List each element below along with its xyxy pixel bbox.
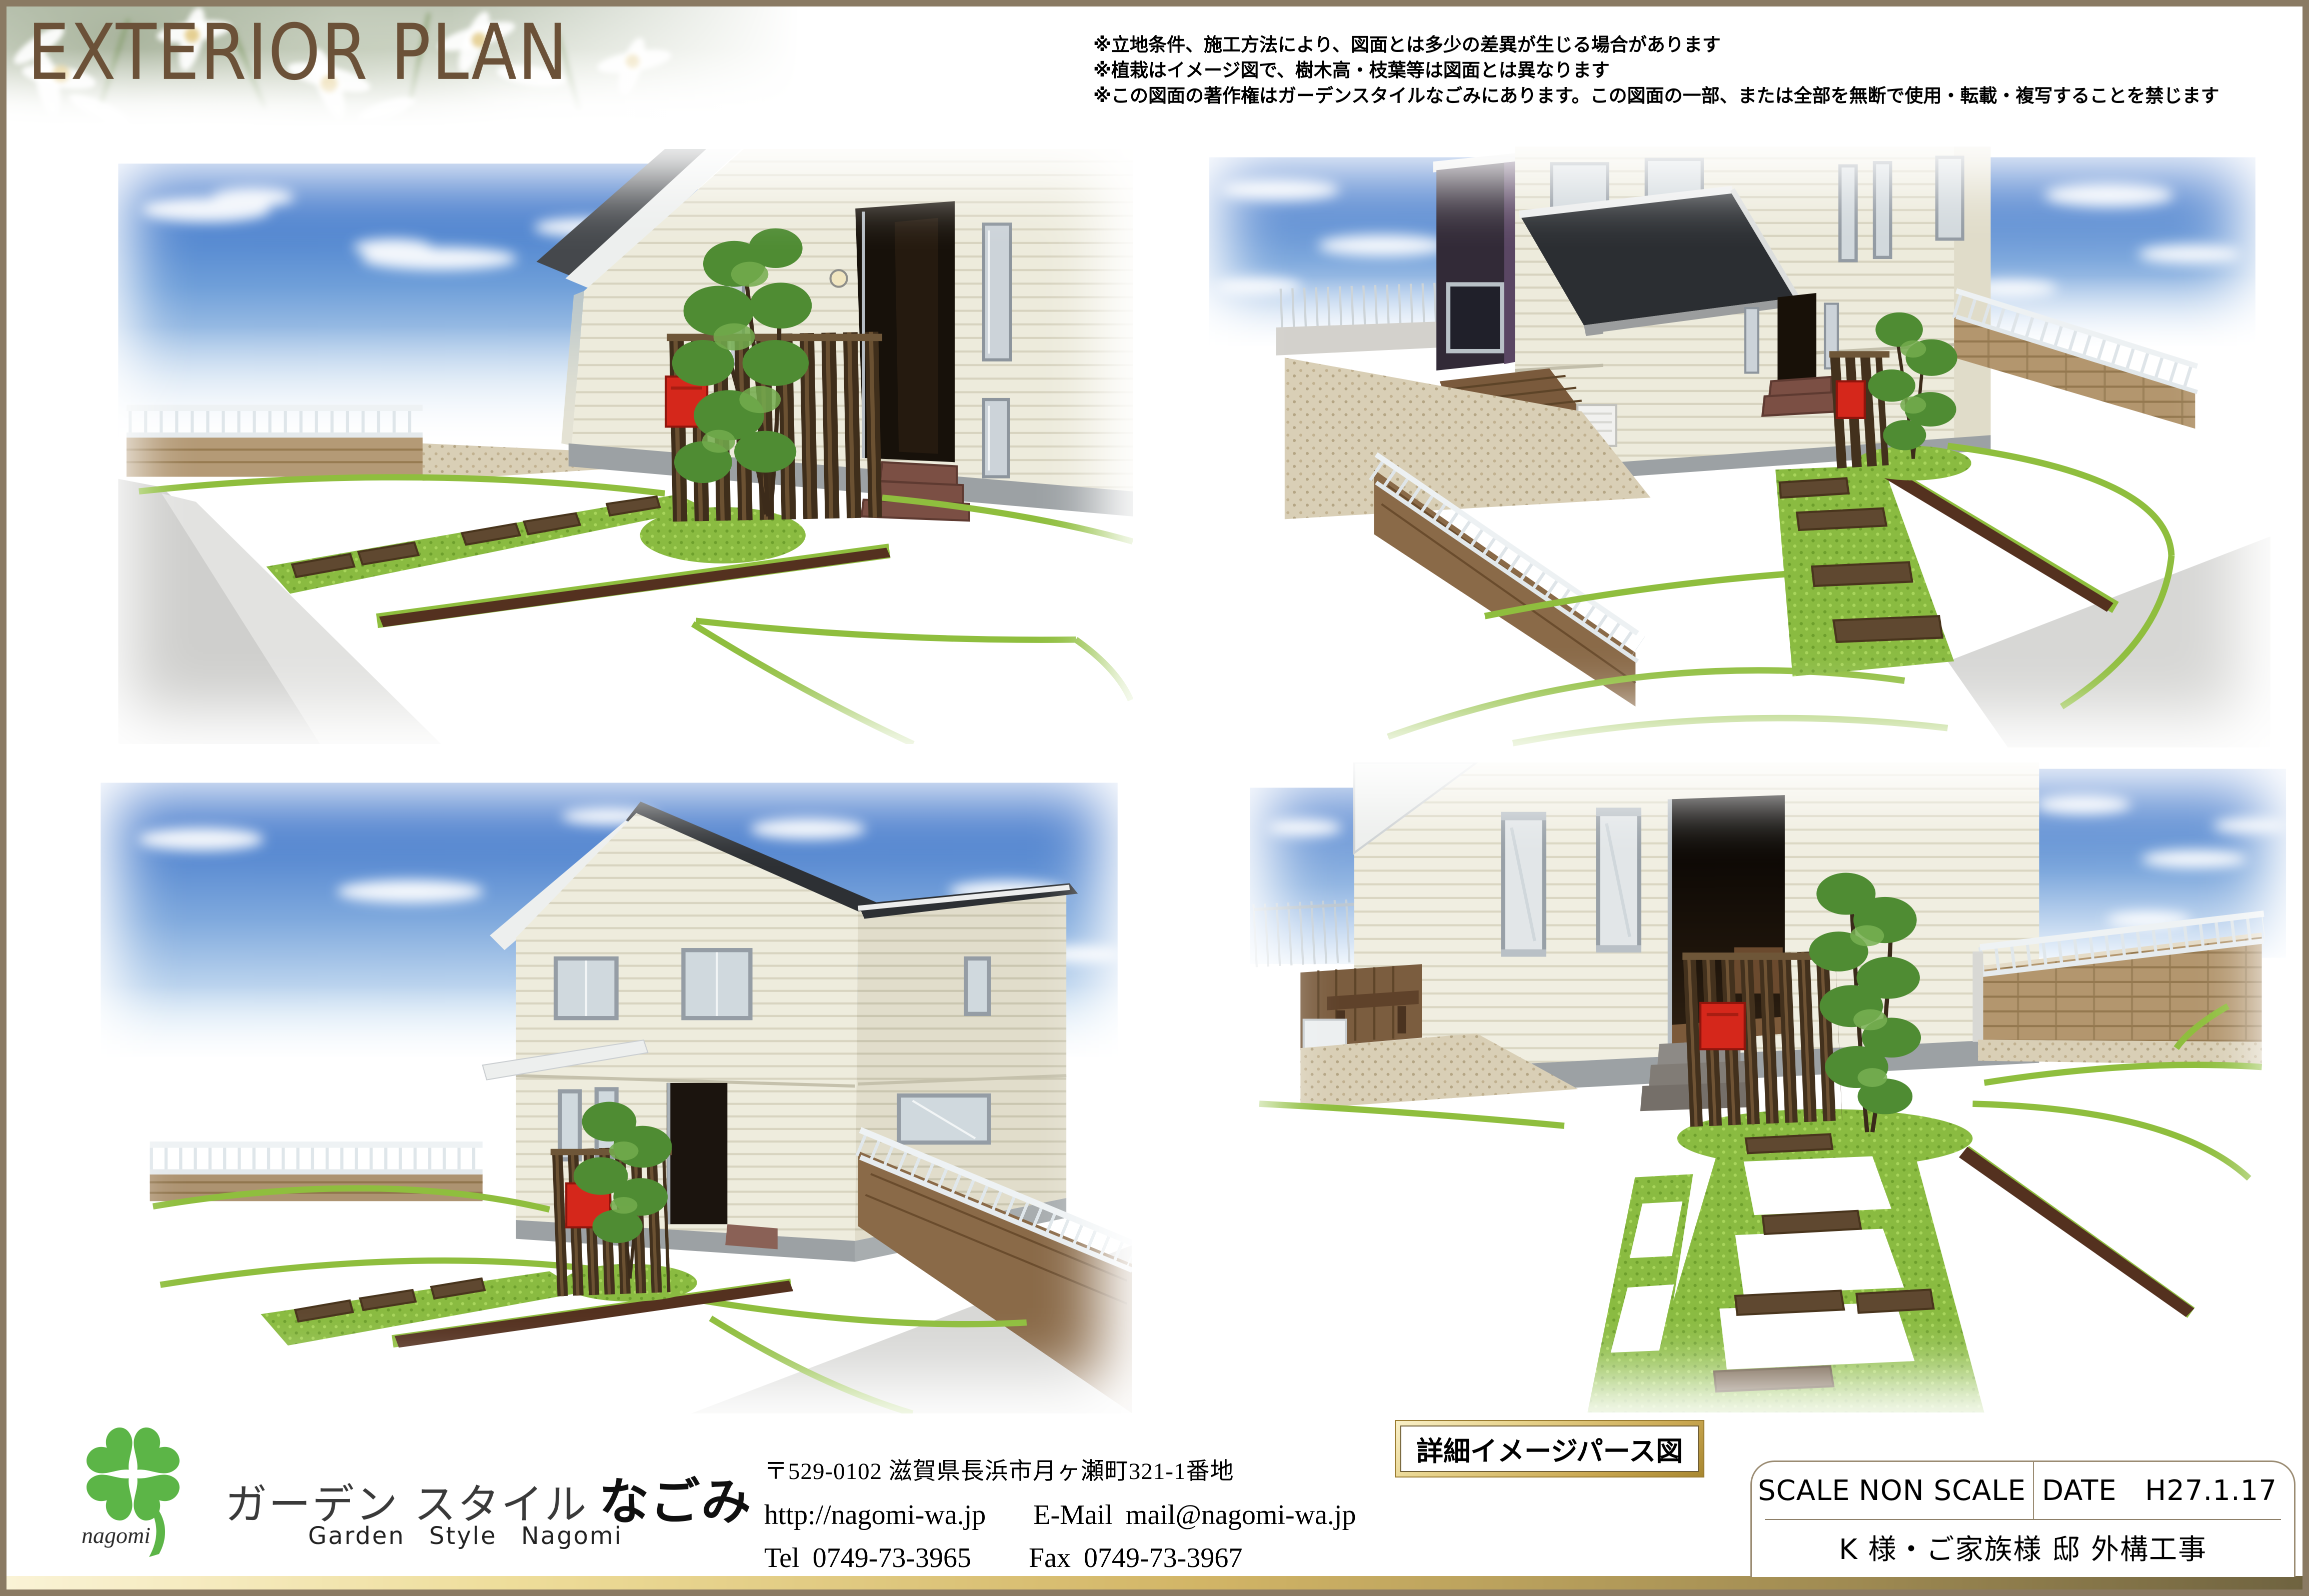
scale-value: NON SCALE bbox=[1859, 1474, 2026, 1507]
tel-number: 0749-73-3965 bbox=[813, 1542, 971, 1574]
contact-block: 〒529-0102 滋賀県長浜市月ヶ瀬町321-1番地 http://nagom… bbox=[764, 1451, 1356, 1574]
mailbox-red bbox=[1837, 381, 1865, 418]
disclaimer-note-3: ※この図面の著作権はガーデンスタイルなごみにあります。この図面の一部、または全部… bbox=[1093, 83, 2219, 108]
disclaimer-note-1: ※立地条件、施工方法により、図面とは多少の差異が生じる場合があります bbox=[1093, 32, 2219, 57]
exterior-plan-sheet: { "title": "EXTERIOR PLAN", "notes": [ "… bbox=[0, 0, 2309, 1596]
website-url: http://nagomi-wa.jp bbox=[764, 1499, 986, 1531]
neighbor-house bbox=[1433, 153, 1517, 370]
outer-slope bbox=[1947, 536, 2270, 747]
scale-label: SCALE bbox=[1758, 1474, 1850, 1507]
stamp-gold-frame: 詳細イメージパース図 bbox=[1395, 1420, 1704, 1477]
disclaimer-note-2: ※植栽はイメージ図で、樹木高・枝葉等は図面とは異なります bbox=[1093, 57, 2219, 83]
project-name: K 様・ご家族様 邸 外構工事 bbox=[1752, 1520, 2294, 1574]
fax-label: Fax bbox=[1029, 1542, 1071, 1574]
bottom-gold-band bbox=[7, 1576, 2302, 1589]
render-aerial-view bbox=[1194, 146, 2270, 747]
render-front-overall-view bbox=[86, 766, 1132, 1413]
fax-number: 0749-73-3967 bbox=[1084, 1542, 1242, 1574]
tel-label: Tel bbox=[764, 1542, 800, 1574]
drawing-type-stamp: 詳細イメージパース図 bbox=[1395, 1420, 1704, 1477]
wood-beam bbox=[1959, 1147, 2194, 1317]
stamp-label: 詳細イメージパース図 bbox=[1400, 1425, 1699, 1472]
mailbox-red bbox=[1700, 1003, 1745, 1049]
entrance-door bbox=[667, 1083, 727, 1224]
entrance bbox=[1777, 293, 1816, 388]
email-label: E-Mail bbox=[1033, 1499, 1113, 1531]
company-name-en: Garden Style Nagomi bbox=[308, 1522, 623, 1550]
render-entrance-front-view bbox=[1239, 762, 2294, 1412]
stepping-stone-path bbox=[1587, 1121, 1984, 1412]
email-address: mail@nagomi-wa.jp bbox=[1126, 1499, 1356, 1531]
entrance-steps bbox=[725, 1224, 778, 1249]
date-label: DATE bbox=[2042, 1474, 2117, 1507]
date-value: H27.1.17 bbox=[2145, 1474, 2277, 1507]
porch-light bbox=[831, 270, 847, 286]
page-title: EXTERIOR PLAN bbox=[28, 8, 569, 97]
render-entrance-side-view bbox=[98, 149, 1133, 744]
title-block: SCALE NON SCALE DATE H27.1.17 K 様・ご家族様 邸… bbox=[1750, 1460, 2295, 1577]
postal-address: 〒529-0102 滋賀県長浜市月ヶ瀬町321-1番地 bbox=[764, 1451, 1356, 1486]
entrance-steps bbox=[1762, 377, 1838, 416]
wood-beam bbox=[379, 548, 891, 627]
disclaimer-notes: ※立地条件、施工方法により、図面とは多少の差異が生じる場合があります ※植栽はイ… bbox=[1093, 32, 2219, 108]
logo-text: nagomi bbox=[82, 1522, 151, 1548]
